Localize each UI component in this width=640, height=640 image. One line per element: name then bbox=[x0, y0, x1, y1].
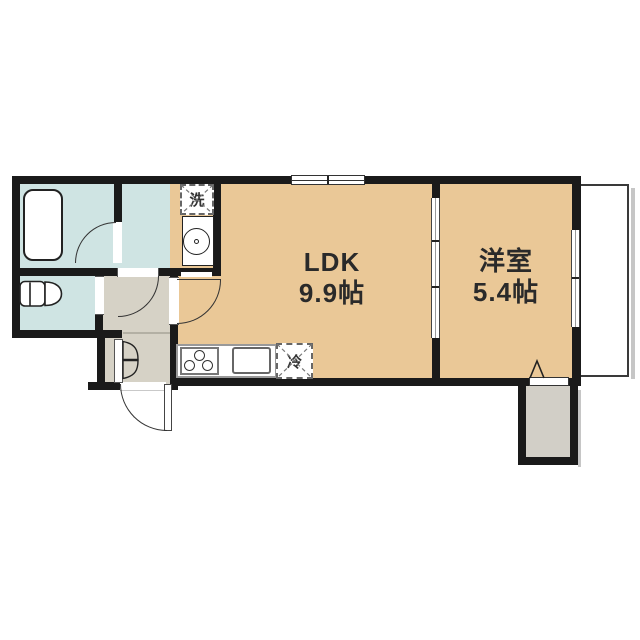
toilet-bowl bbox=[45, 282, 62, 306]
fixture-details bbox=[0, 0, 640, 640]
floor-plan: 洗 冷 LDK 9.9帖 洋室 5.4 bbox=[0, 0, 640, 640]
toilet-fixture bbox=[20, 282, 62, 307]
ldk-size: 9.9帖 bbox=[299, 278, 365, 309]
bedroom-label: 洋室 5.4帖 bbox=[426, 246, 586, 308]
bedroom-name: 洋室 bbox=[479, 246, 533, 277]
storage-access-caret bbox=[530, 361, 544, 378]
ldk-label: LDK 9.9帖 bbox=[252, 247, 412, 309]
ldk-name: LDK bbox=[304, 247, 360, 278]
bedroom-size: 5.4帖 bbox=[473, 277, 539, 308]
toilet-tank bbox=[20, 282, 45, 307]
closet-bifold-door bbox=[123, 342, 138, 379]
bifold-leaf-bottom bbox=[123, 361, 138, 379]
bifold-leaf-top bbox=[123, 342, 138, 360]
